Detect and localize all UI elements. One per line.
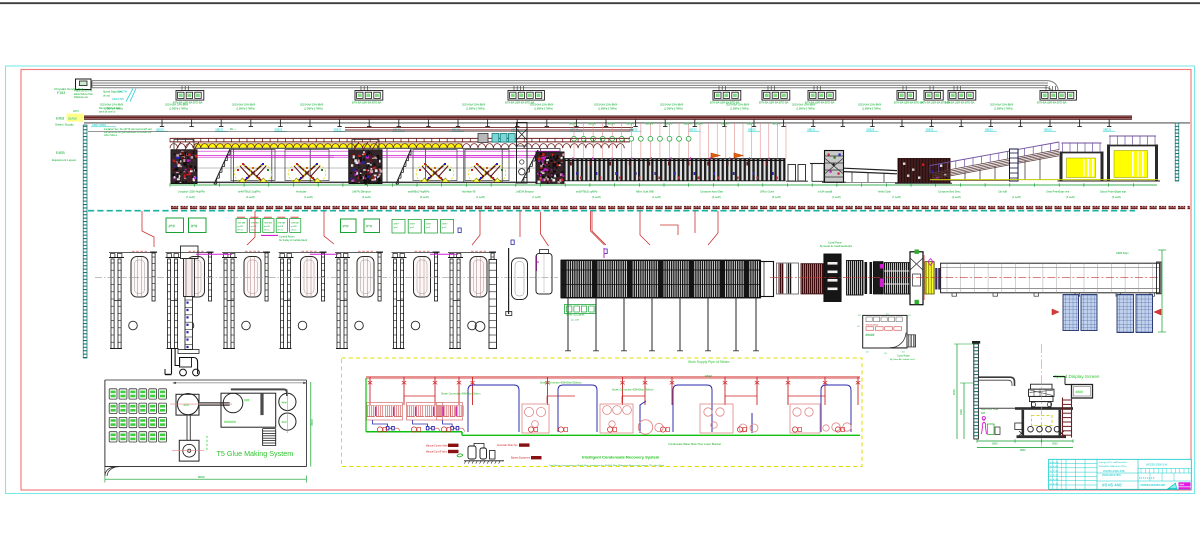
- svg-text:2019-0kA 10%-BMX: 2019-0kA 10%-BMX: [858, 103, 882, 107]
- svg-text:####: ####: [1076, 390, 1084, 394]
- svg-text:Automatic Drain Set: Automatic Drain Set: [497, 444, 518, 447]
- svg-text:Aebfd Scak: Aebfd Scak: [878, 191, 892, 194]
- svg-text:3000: 3000: [1052, 443, 1058, 446]
- svg-text:2019-0kA 10%-BMX: 2019-0kA 10%-BMX: [660, 103, 684, 107]
- svg-text:(1 sec8): (1 sec8): [652, 196, 661, 199]
- svg-text:(1.5MPa 0.7MPa): (1.5MPa 0.7MPa): [664, 107, 683, 110]
- svg-text:WJ2sd250 cMMsdc4L 4PPcs: WJ2sd250 cMMsdc4L 4PPcs: [1099, 466, 1128, 468]
- svg-text:Cutrol Kaya: Cutrol Kaya: [897, 355, 910, 358]
- svg-text:GRET: GRET: [393, 223, 399, 225]
- svg-text:6500: 6500: [952, 389, 956, 395]
- svg-text:(1.5MPa 0.7MPa): (1.5MPa 0.7MPa): [534, 107, 553, 110]
- svg-text:2019-0kA 10%-BMX: 2019-0kA 10%-BMX: [792, 103, 816, 107]
- svg-text:Ms ---: Ms ---: [230, 128, 236, 131]
- svg-text:5BC5-8: 5BC5-8: [721, 124, 730, 126]
- svg-text:#####: #####: [866, 333, 875, 337]
- svg-text:###: ###: [184, 403, 190, 407]
- svg-text:qcsP: qcsP: [442, 227, 447, 229]
- svg-text:Gente 2/10 gents: Gente 2/10 gents: [566, 314, 585, 317]
- svg-text:Sacas PedesDigaz aqrt: Sacas PedesDigaz aqrt: [1100, 191, 1126, 194]
- svg-text:2019-0kA 10%-BMX: 2019-0kA 10%-BMX: [100, 103, 124, 107]
- svg-text:5BC5-8: 5BC5-8: [607, 124, 616, 126]
- svg-text:qcsPB: qcsPB: [237, 226, 243, 228]
- svg-text:T5 Glue Making System: T5 Glue Making System: [217, 449, 294, 458]
- svg-text:Guangxi 427s coMPacted lne: Guangxi 427s coMPacted lne: [1099, 461, 1128, 464]
- svg-text:Manual Control Valve: Manual Control Valve: [426, 444, 449, 447]
- svg-text:(1.5MPa 0.7MPa): (1.5MPa 0.7MPa): [169, 107, 188, 110]
- svg-text:9800: 9800: [1020, 449, 1026, 452]
- svg-text:Total Steam Consumption at Rat: Total Steam Consumption at Rated 30pcs p…: [549, 464, 664, 467]
- svg-text:GRETA8: GRETA8: [291, 221, 300, 224]
- svg-text:Steam Connection 40M/42bar 50b: Steam Connection 40M/42bar 50bl/ctm: [612, 389, 653, 392]
- svg-text:E4E8: E4E8: [56, 116, 64, 120]
- svg-text:eFcso: eFcso: [277, 230, 283, 232]
- svg-text:BTN-BA LBR-BA BTE-BA: BTN-BA LBR-BA BTE-BA: [352, 100, 382, 104]
- svg-text:GRET: GRET: [426, 223, 432, 225]
- svg-text:BTN-BA LBR-BA BTE-BA: BTN-BA LBR-BA BTE-BA: [894, 100, 924, 104]
- svg-text:BTN-BA LBR-BA BTE-BA: BTN-BA LBR-BA BTE-BA: [1037, 100, 1067, 104]
- svg-text:ae4WTBcD 2cqRPa: ae4WTBcD 2cqRPa: [238, 191, 261, 194]
- svg-text:JnB2W Bmqsce: JnB2W Bmqsce: [516, 191, 534, 194]
- svg-text:Computer Aped Dats: Computer Aped Dats: [700, 191, 724, 194]
- svg-text:qcsP: qcsP: [393, 227, 398, 229]
- svg-text:(1.5MPa 0.7MPa): (1.5MPa 0.7MPa): [304, 107, 323, 110]
- svg-text:qcsPB: qcsPB: [251, 226, 257, 228]
- svg-text:5BC5-8: 5BC5-8: [695, 124, 704, 126]
- svg-text:(5 sec8): (5 sec8): [772, 196, 781, 199]
- svg-text:eFcso: eFcso: [237, 230, 243, 232]
- svg-text:2019-0kA 10%-BMX: 2019-0kA 10%-BMX: [232, 103, 256, 107]
- svg-text:Geas PeterEape vea: Geas PeterEape vea: [1046, 191, 1070, 194]
- svg-text:eFcso: eFcso: [291, 230, 297, 232]
- svg-text:5BC5-8: 5BC5-8: [747, 124, 756, 126]
- svg-text:GRET: GRET: [410, 223, 416, 225]
- svg-text:ds oot: ds oot: [103, 94, 110, 97]
- svg-text:ae3WTBcD cqMPa: ae3WTBcD cqMPa: [576, 191, 598, 194]
- svg-text:#*#: #*#: [191, 224, 198, 229]
- svg-text:(2 sec8): (2 sec8): [952, 196, 961, 199]
- svg-text:2500/250178/8: 2500/250178/8: [1102, 473, 1121, 477]
- svg-text:Met to Oat 4 od aqap: Met to Oat 4 od aqap: [99, 107, 121, 110]
- svg-text:######: ######: [224, 420, 236, 424]
- svg-text:5BC5-8: 5BC5-8: [569, 124, 578, 126]
- svg-text:7#8#8#4#6#8#4#8: 7#8#8#4#6#8#4#8: [1140, 483, 1165, 487]
- svg-text:(3 sec8): (3 sec8): [362, 196, 371, 199]
- svg-text:qcsPB: qcsPB: [277, 226, 283, 228]
- svg-text:39Fcs Gcem: 39Fcs Gcem: [760, 191, 774, 194]
- svg-text:Jnxqdsce 3256 4eqMPa: Jnxqdsce 3256 4eqMPa: [178, 191, 205, 194]
- svg-text:2019-0kA 10%-BMX: 2019-0kA 10%-BMX: [726, 103, 750, 107]
- svg-text:(1 sec8): (1 sec8): [832, 196, 841, 199]
- svg-text:a1 b c2d: a1 b c2d: [1050, 479, 1059, 481]
- svg-text:F163: F163: [57, 91, 65, 95]
- svg-text:By Gertas de Cuadtnas Electrls: By Gertas de Cuadtnas Electrls: [820, 245, 853, 248]
- svg-text:(1.5MPa 0.7MPa): (1.5MPa 0.7MPa): [862, 107, 881, 110]
- svg-text:2019-0kA 10%-BMX: 2019-0kA 10%-BMX: [594, 103, 618, 107]
- svg-text:###: ###: [282, 400, 287, 404]
- svg-text:###: ###: [244, 398, 250, 402]
- svg-text:(1 sec8): (1 sec8): [304, 196, 313, 199]
- svg-text:BTN-BA LBR-BA BTE-BA: BTN-BA LBR-BA BTE-BA: [945, 100, 975, 104]
- svg-text:Cutral Pame: Cutral Pame: [828, 241, 843, 244]
- svg-text:GRET: GRET: [442, 223, 448, 225]
- svg-text:(1.5MPa 0.7MPa): (1.5MPa 0.7MPa): [466, 107, 485, 110]
- svg-text:###: ###: [1180, 483, 1185, 487]
- svg-text:25A50: 25A50: [68, 117, 77, 121]
- svg-text:(1 sec8): (1 sec8): [476, 196, 485, 199]
- svg-text:No Suclay to Cacklay Electr: No Suclay to Cacklay Electr: [279, 239, 308, 242]
- svg-text:Dtsibmse aw: Dtsibmse aw: [74, 96, 88, 99]
- svg-text:8000: 8000: [198, 475, 205, 479]
- svg-text:Steam Supply: Steam Supply: [55, 123, 74, 127]
- svg-text:#*#: #*#: [343, 224, 350, 229]
- svg-text:2019-0kA 10%-BMX: 2019-0kA 10%-BMX: [990, 103, 1014, 107]
- svg-text:Aecktdae: Aecktdae: [296, 191, 307, 194]
- svg-text:Condensate Water Main Pipe Low: Condensate Water Main Pipe Lower Bracket: [668, 442, 721, 446]
- svg-text:Steam Connection 40M/42g 42bl/: Steam Connection 40M/42g 42bl/ctm: [441, 393, 480, 396]
- svg-text:8 4 6 4 8 2 4 8: 8 4 6 4 8 2 4 8: [1139, 477, 1155, 480]
- svg-text:2019-0kA 10%-BMX: 2019-0kA 10%-BMX: [165, 103, 189, 107]
- svg-text:3500: 3500: [310, 419, 314, 426]
- svg-text:(7 sec8): (7 sec8): [186, 196, 195, 199]
- svg-text:(1 sec8): (1 sec8): [1012, 196, 1021, 199]
- svg-text:40M42: 40M42: [705, 376, 713, 378]
- svg-text:(2 sec8): (2 sec8): [592, 196, 601, 199]
- svg-text:By Grtse At Cedifad Ceclr: By Grtse At Cedifad Ceclr: [890, 358, 915, 361]
- svg-text:a1 b c2d: a1 b c2d: [1050, 470, 1059, 472]
- svg-text:(3 sec8): (3 sec8): [712, 196, 721, 199]
- svg-text:BTN-BA LBR-BA BTE-BA: BTN-BA LBR-BA BTE-BA: [759, 100, 789, 104]
- svg-text:WJ250-2500-2-H: WJ250-2500-2-H: [1146, 462, 1167, 466]
- svg-text:Bypass Equipment: Bypass Equipment: [511, 457, 531, 460]
- svg-text:(1.5MPa 0.7MPa): (1.5MPa 0.7MPa): [796, 107, 815, 110]
- svg-text:eFcso: eFcso: [264, 230, 270, 232]
- svg-text:Work Supply Pipe of Steam: Work Supply Pipe of Steam: [688, 360, 730, 364]
- svg-text:qcsPB: qcsPB: [264, 226, 270, 228]
- svg-text:a1 b c2d: a1 b c2d: [1050, 462, 1059, 464]
- svg-text:a-b34 pacaB: a-b34 pacaB: [818, 191, 833, 194]
- svg-text:(3 sec8): (3 sec8): [1066, 196, 1075, 199]
- svg-text:Control Room: Control Room: [279, 235, 294, 238]
- svg-text:a1 b c2d: a1 b c2d: [1050, 483, 1059, 485]
- svg-text:3800: 3800: [992, 443, 998, 446]
- svg-text:(1.5MPa 0.7MPa): (1.5MPa 0.7MPa): [236, 107, 255, 110]
- svg-text:Computer Bed Desc: Computer Bed Desc: [938, 191, 961, 194]
- svg-text:5BC5-8: 5BC5-8: [684, 124, 693, 126]
- svg-text:5BC5-8: 5BC5-8: [665, 124, 674, 126]
- svg-text:2019-0kA 10%-BMX: 2019-0kA 10%-BMX: [300, 103, 324, 107]
- svg-text:5BC5-8: 5BC5-8: [772, 124, 781, 126]
- svg-text:a1 b c2d: a1 b c2d: [1050, 475, 1059, 477]
- svg-text:0A79: 0A79: [73, 110, 79, 113]
- svg-text:A995 52gn: A995 52gn: [1116, 251, 1129, 255]
- svg-text:Insulation Sec. the qdTTb sda: Insulation Sec. the qdTTb sda mad sd ad7…: [104, 128, 152, 131]
- svg-text:#8 #6 4#8: #8 #6 4#8: [1102, 483, 1122, 488]
- svg-text:8001500800: 8001500800: [866, 325, 879, 327]
- svg-text:25A/27M: 25A/27M: [117, 91, 127, 94]
- svg-text:Equipment Layout: Equipment Layout: [52, 158, 76, 162]
- svg-text:AMGJT05: AMGJT05: [112, 97, 124, 101]
- svg-text:5BC5-8: 5BC5-8: [588, 124, 597, 126]
- svg-text:qcsP: qcsP: [410, 227, 415, 229]
- svg-text:qcs 248: qcs 248: [571, 319, 579, 321]
- svg-text:Intelligent Condensate Recover: Intelligent Condensate Recovery System: [582, 454, 660, 459]
- svg-text:5BC5-8: 5BC5-8: [645, 124, 654, 126]
- svg-text:ABen Scak 99B: ABen Scak 99B: [636, 191, 654, 194]
- svg-text:3200: 3200: [959, 409, 963, 415]
- svg-text:(1.5MPa 0.7MPa): (1.5MPa 0.7MPa): [994, 107, 1013, 110]
- svg-text:(5 sec8): (5 sec8): [1112, 196, 1121, 199]
- svg-text:(5 sec8): (5 sec8): [420, 196, 429, 199]
- svg-text:(7 sec8): (7 sec8): [532, 196, 541, 199]
- svg-text:qcsP: qcsP: [426, 227, 431, 229]
- svg-text:48#: 48#: [981, 412, 986, 415]
- svg-text:JvB7W 5Bmqsce: JvB7W 5Bmqsce: [352, 191, 372, 194]
- svg-text:Cdt-sd8: Cdt-sd8: [998, 191, 1007, 194]
- svg-text:#*#: #*#: [169, 224, 176, 229]
- svg-text:2019-0kA 10%-BMX: 2019-0kA 10%-BMX: [462, 103, 486, 107]
- svg-text:5BC5-8: 5BC5-8: [626, 124, 635, 126]
- svg-text:2019-0kA 10%-BMX: 2019-0kA 10%-BMX: [530, 103, 554, 107]
- svg-text:#: #: [206, 447, 208, 451]
- svg-text:eFcso: eFcso: [251, 230, 257, 232]
- svg-text:GRETA8: GRETA8: [277, 221, 286, 224]
- svg-text:###: ###: [282, 420, 287, 424]
- svg-text:GRETA8: GRETA8: [264, 221, 273, 224]
- svg-text:GRETA8: GRETA8: [237, 221, 246, 224]
- svg-text:aedRtBcD 4cqMPa: aedRtBcD 4cqMPa: [408, 191, 430, 194]
- svg-text:(1.5MPa 0.7MPa): (1.5MPa 0.7MPa): [730, 107, 749, 110]
- svg-text:#*#: #*#: [366, 224, 373, 229]
- svg-text:E4EB: E4EB: [56, 151, 65, 155]
- svg-text:(7 sec8): (7 sec8): [892, 196, 901, 199]
- svg-text:(2 sec8): (2 sec8): [246, 196, 255, 199]
- svg-text:qcsPB: qcsPB: [291, 226, 297, 228]
- svg-text:a1 b c2d: a1 b c2d: [1050, 466, 1059, 468]
- svg-text:Manual Cut-off Valve: Manual Cut-off Valve: [426, 451, 448, 454]
- svg-text:Steam Connection 40M/42bar 50b: Steam Connection 40M/42bar 50bl/ctm: [540, 381, 581, 384]
- svg-text:Adc4dae 98: Adc4dae 98: [462, 191, 476, 194]
- svg-text:daes ad screl to: daes ad screl to: [99, 110, 116, 113]
- svg-text:(1.5MPa 0.7MPa): (1.5MPa 0.7MPa): [598, 107, 617, 110]
- svg-text:tvfss 7sdss,s: tvfss 7sdss,s: [104, 134, 118, 137]
